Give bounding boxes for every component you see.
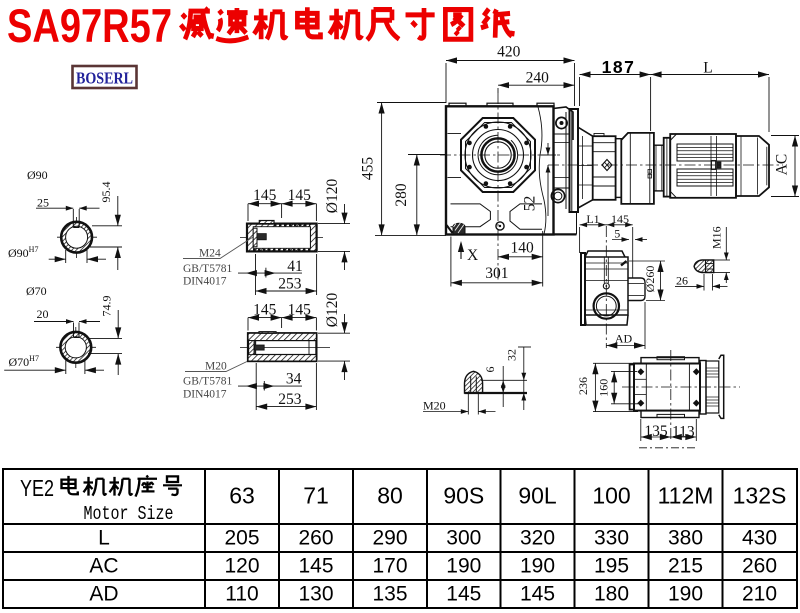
svg-text:GB/T5781: GB/T5781 <box>183 263 232 275</box>
svg-text:DIN4017: DIN4017 <box>183 276 227 288</box>
svg-text:290: 290 <box>372 527 407 550</box>
svg-text:X: X <box>467 247 478 264</box>
svg-text:187: 187 <box>602 57 636 77</box>
svg-text:L1: L1 <box>586 212 599 226</box>
svg-text:SA97R57: SA97R57 <box>7 0 172 52</box>
svg-text:5: 5 <box>614 227 620 241</box>
svg-text:135: 135 <box>372 583 407 606</box>
svg-text:L: L <box>98 527 110 550</box>
svg-text:M16: M16 <box>710 226 724 249</box>
svg-text:170: 170 <box>372 555 407 578</box>
svg-text:63: 63 <box>229 483 255 509</box>
svg-text:132S: 132S <box>733 483 787 509</box>
svg-text:25: 25 <box>37 196 49 210</box>
svg-text:26: 26 <box>676 274 688 288</box>
svg-text:145: 145 <box>298 555 333 578</box>
svg-text:190: 190 <box>446 555 481 578</box>
svg-text:Ø70: Ø70 <box>26 284 47 298</box>
svg-text:M24: M24 <box>199 248 221 260</box>
svg-text:74.9: 74.9 <box>99 296 113 317</box>
svg-text:Ø120: Ø120 <box>324 293 341 328</box>
svg-text:100: 100 <box>592 483 630 509</box>
svg-text:90S: 90S <box>443 483 484 509</box>
svg-text:95.4: 95.4 <box>99 182 113 203</box>
svg-text:260: 260 <box>298 527 333 550</box>
svg-text:6: 6 <box>483 367 497 373</box>
svg-text:210: 210 <box>742 583 777 606</box>
svg-text:AC: AC <box>89 555 118 578</box>
svg-text:280: 280 <box>393 183 410 207</box>
svg-text:120: 120 <box>224 555 259 578</box>
svg-text:195: 195 <box>594 555 629 578</box>
svg-text:20: 20 <box>37 307 49 321</box>
svg-text:300: 300 <box>446 527 481 550</box>
svg-text:301: 301 <box>485 265 508 282</box>
svg-text:90L: 90L <box>518 483 557 509</box>
svg-text:253: 253 <box>278 391 302 408</box>
svg-text:430: 430 <box>742 527 777 550</box>
svg-text:34: 34 <box>286 371 302 388</box>
svg-text:145: 145 <box>446 583 481 606</box>
svg-text:110: 110 <box>225 583 258 606</box>
svg-text:DIN4017: DIN4017 <box>183 389 227 401</box>
svg-text:145: 145 <box>520 583 555 606</box>
svg-text:380: 380 <box>668 527 703 550</box>
svg-text:253: 253 <box>278 276 302 293</box>
svg-text:320: 320 <box>520 527 555 550</box>
svg-text:420: 420 <box>497 44 521 61</box>
svg-text:BOSERL: BOSERL <box>76 69 133 88</box>
svg-text:140: 140 <box>510 240 534 257</box>
svg-text:112M: 112M <box>658 483 714 509</box>
svg-text:Ø260: Ø260 <box>643 266 657 293</box>
svg-text:160: 160 <box>597 379 611 397</box>
svg-text:330: 330 <box>594 527 629 550</box>
svg-text:190: 190 <box>668 583 703 606</box>
svg-text:52: 52 <box>522 196 539 212</box>
svg-text:GB/T5781: GB/T5781 <box>183 376 232 388</box>
svg-text:180: 180 <box>594 583 629 606</box>
svg-text:80: 80 <box>377 483 403 509</box>
svg-text:L: L <box>703 60 712 77</box>
svg-text:41: 41 <box>287 258 303 275</box>
svg-text:32: 32 <box>505 349 519 361</box>
svg-text:Ø90: Ø90 <box>27 168 48 182</box>
svg-text:240: 240 <box>526 70 550 87</box>
svg-text:AC: AC <box>774 154 791 176</box>
svg-text:215: 215 <box>668 555 703 578</box>
svg-text:AD: AD <box>89 583 118 606</box>
svg-text:71: 71 <box>303 483 329 509</box>
svg-text:M20: M20 <box>205 361 227 373</box>
svg-text:M20: M20 <box>423 399 446 413</box>
svg-text:190: 190 <box>520 555 555 578</box>
svg-text:YE2: YE2 <box>20 475 54 501</box>
svg-text:455: 455 <box>360 157 377 181</box>
svg-text:260: 260 <box>742 555 777 578</box>
svg-text:Motor Size: Motor Size <box>84 503 174 525</box>
svg-text:205: 205 <box>224 527 259 550</box>
svg-text:AD: AD <box>615 332 633 346</box>
svg-text:Ø120: Ø120 <box>324 179 341 214</box>
svg-text:236: 236 <box>576 377 590 395</box>
svg-text:130: 130 <box>298 583 333 606</box>
